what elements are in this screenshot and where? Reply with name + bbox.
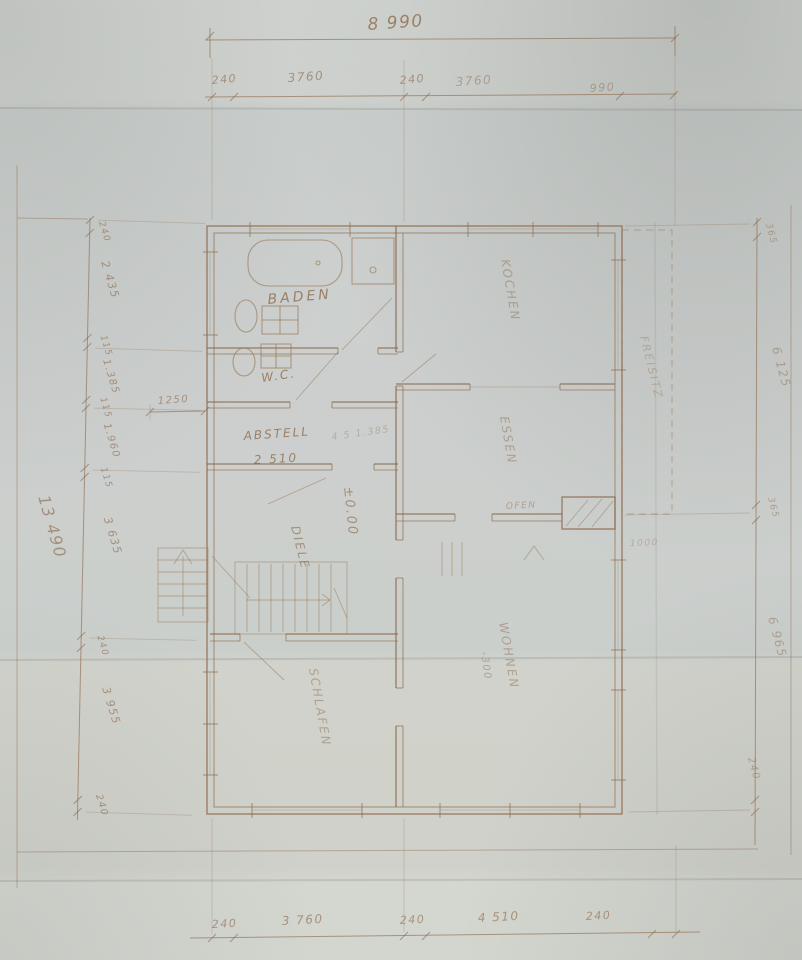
room-label-essen: ESSEN	[497, 415, 519, 466]
dim-left-seg-1: 2 435	[98, 259, 122, 300]
room-label-abstell: ABSTELL	[242, 424, 310, 443]
floor-plan-scan: 8 990 240 3760 240 3760 990 240 3 760 24…	[0, 0, 802, 960]
shower	[352, 238, 394, 284]
dim-top-seg-2: 240	[399, 72, 426, 87]
note-abstell-dim: 1250	[157, 394, 189, 407]
dim-bottom-seg-0: 240	[211, 917, 237, 931]
room-label-freisitz: FREISITZ	[637, 335, 665, 401]
dim-bottom-seg-4: 240	[585, 909, 611, 923]
dim-top-seg-1: 3760	[287, 68, 324, 85]
dim-left-seg-3: 1.385	[100, 358, 121, 396]
entry-stairs-west	[158, 548, 208, 622]
dim-left-total: 13 490	[34, 493, 70, 561]
interior-walls	[207, 226, 615, 807]
dim-left-seg-0: 240	[96, 220, 112, 244]
dim-left-seg-10: 240	[93, 793, 110, 818]
dim-left-seg-8: 240	[94, 634, 110, 658]
interior-staircase	[235, 562, 347, 634]
level-wohnen: -300	[478, 651, 493, 681]
dim-top-seg-0: 240	[211, 72, 238, 87]
label-ofen: OFEN	[506, 500, 537, 512]
floor-plan-drawing: 8 990 240 3760 240 3760 990 240 3 760 24…	[0, 0, 802, 960]
room-label-baden: BADEN	[267, 286, 332, 308]
dim-top-seg-3: 3760	[455, 72, 492, 89]
dim-left-seg-7: 3 635	[101, 515, 125, 556]
dim-top-seg-4: 990	[589, 80, 615, 95]
abstell-dimension	[146, 404, 209, 420]
right-dimension-chain: 365 6 125 365 6 965 240	[625, 218, 793, 845]
dim-right-seg-4: 240	[745, 756, 762, 782]
note-height: 4 5 1.385	[331, 424, 391, 443]
room-label-diele: DIELE	[288, 524, 312, 571]
dim-left-seg-6: 115	[98, 466, 114, 490]
note-wohnen-dim: 1000	[630, 538, 659, 549]
door-swings	[212, 298, 436, 680]
dim-bottom-seg-2: 240	[399, 913, 425, 927]
left-dimension-chain: 240 2 435 115 1.385 115 1.960 115 3 635 …	[28, 215, 205, 822]
level-ground: ±0.00	[340, 486, 360, 537]
dim-right-seg-3: 6 965	[765, 615, 789, 659]
dim-left-seg-5: 1.960	[101, 422, 122, 460]
room-size-abstell: 2 510	[253, 451, 298, 467]
dim-right-seg-2: 365	[765, 496, 780, 520]
bathtub	[248, 240, 342, 286]
dim-right-seg-1: 6 125	[769, 345, 793, 389]
dim-left-seg-9: 3 955	[99, 685, 123, 726]
top-dimension-chain: 8 990 240 3760 240 3760 990	[205, 11, 679, 225]
room-label-schlafen: SCHLAFEN	[306, 667, 334, 748]
dim-top-total: 8 990	[367, 11, 424, 35]
wohnen-steps	[442, 542, 544, 576]
room-label-wohnen: WOHNEN	[496, 621, 522, 690]
dim-left-seg-2: 115	[98, 334, 114, 358]
dim-bottom-seg-1: 3 760	[281, 912, 324, 928]
dim-right-seg-0: 365	[763, 222, 778, 246]
room-label-kochen: KOCHEN	[498, 258, 523, 322]
room-label-wc: W.C.	[260, 366, 297, 385]
dim-bottom-seg-3: 4 510	[477, 909, 520, 925]
